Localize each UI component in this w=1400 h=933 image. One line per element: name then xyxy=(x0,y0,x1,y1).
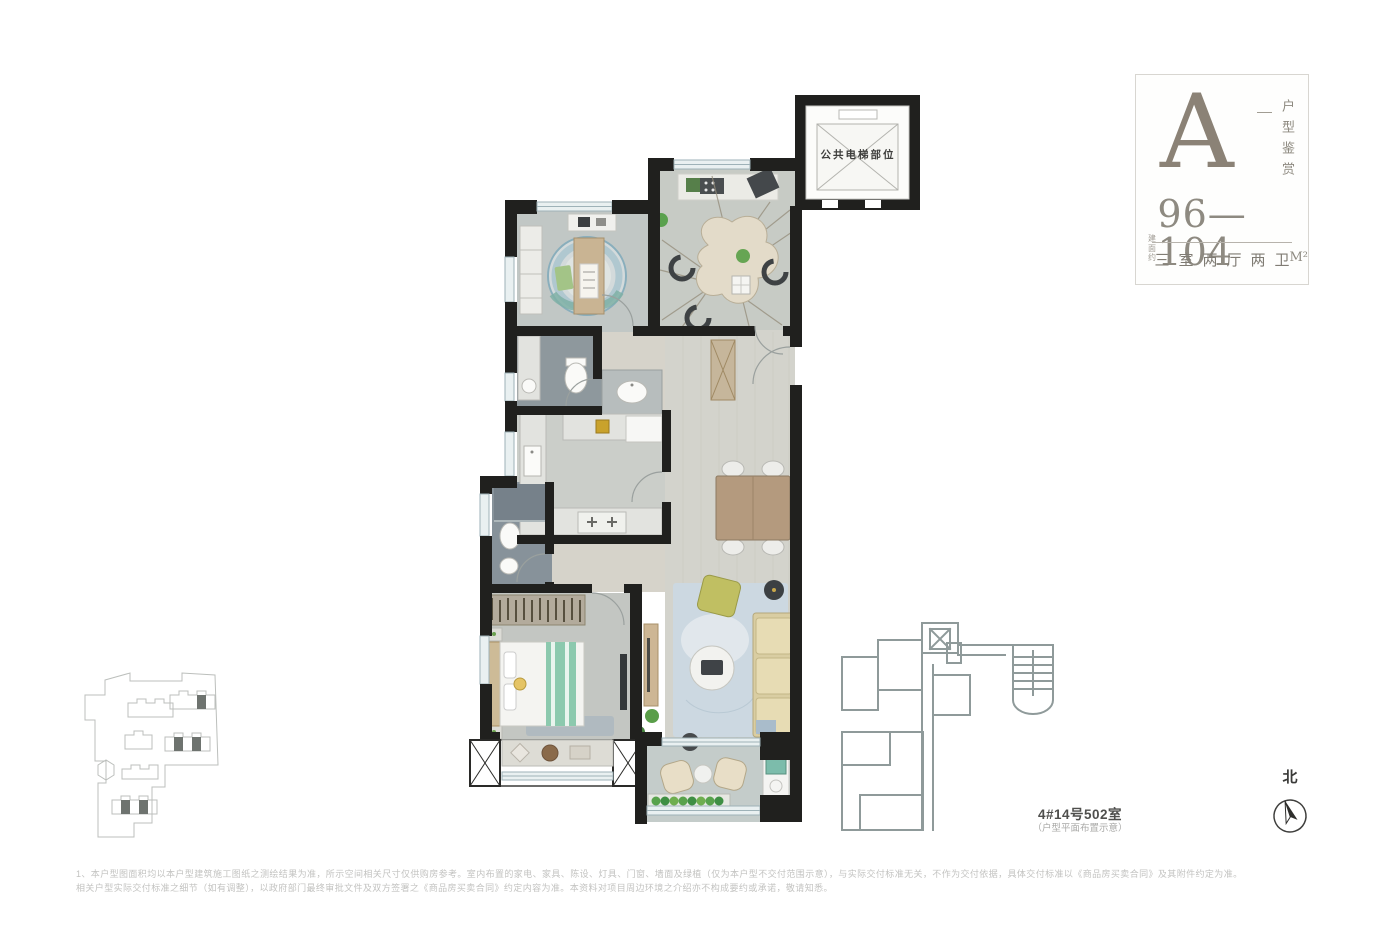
disclaimer: 1、本户型图面积均以本户型建筑施工图纸之测绘结果为准，所示空间相关尺寸仅供购房参… xyxy=(76,867,1326,895)
decorative-dash xyxy=(1257,112,1272,113)
room-layout-label: 三室两厅两卫 xyxy=(1136,249,1308,270)
bedroom2-furniture xyxy=(520,214,626,315)
compass: 北 xyxy=(1258,770,1322,844)
north-label: 北 xyxy=(1258,770,1322,786)
unit-appreciation-label: 户型鉴赏 xyxy=(1277,99,1296,183)
card-divider xyxy=(1152,242,1292,243)
site-plan xyxy=(70,665,240,850)
compass-icon xyxy=(1258,786,1322,842)
elevator-label: 公共电梯部位 xyxy=(820,147,896,163)
keyplan-room-sublabel: （户型平面布置示意） xyxy=(990,820,1170,834)
disclaimer-line1: 1、本户型图面积均以本户型建筑施工图纸之测绘结果为准，所示空间相关尺寸仅供购房参… xyxy=(76,867,1326,881)
disclaimer-line2: 相关户型实际交付标准之细节（如有调整），以政府部门最终审批文件及双方签署之《商品… xyxy=(76,881,1326,895)
unit-info-card: A 户型鉴赏 建面约 96—104 M² 三室两厅两卫 xyxy=(1135,74,1309,285)
floorplan-poster: A 户型鉴赏 建面约 96—104 M² 三室两厅两卫 xyxy=(0,0,1400,933)
unit-letter: A xyxy=(1160,79,1234,186)
